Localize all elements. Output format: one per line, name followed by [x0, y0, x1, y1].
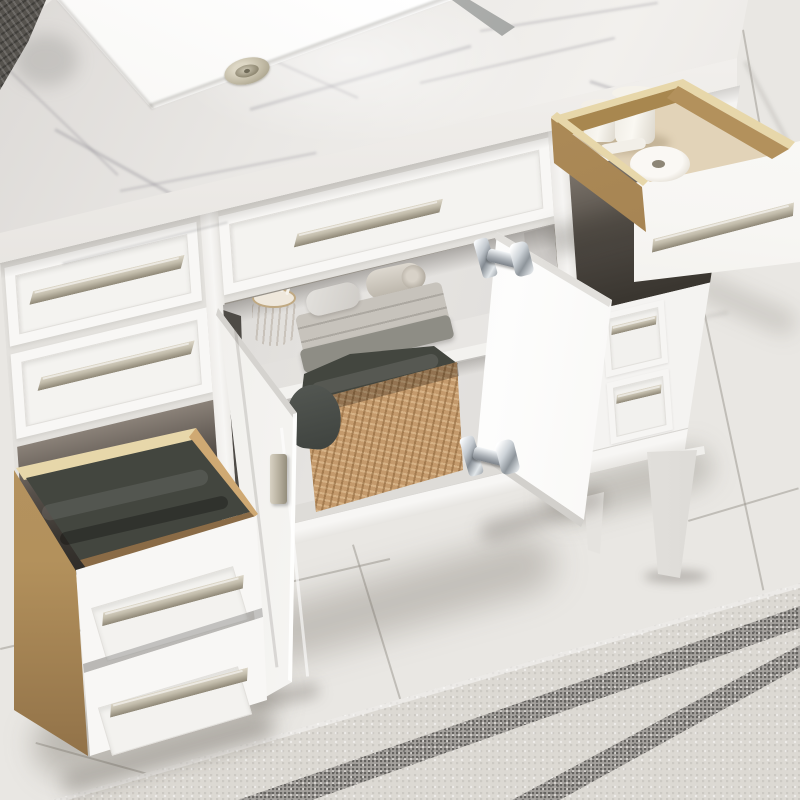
chrome-hinge: [464, 430, 520, 496]
hinge-cup: [508, 240, 535, 278]
chrome-hinge: [478, 232, 534, 298]
side-drawer-front: [602, 300, 668, 378]
left-door-handle: [270, 454, 287, 504]
swab-cup: [252, 288, 296, 350]
paper-roll-core: [652, 160, 665, 168]
hinge-cup: [494, 438, 521, 476]
vanity-product-photo: [0, 0, 800, 800]
floor-grout-line: [700, 297, 764, 591]
